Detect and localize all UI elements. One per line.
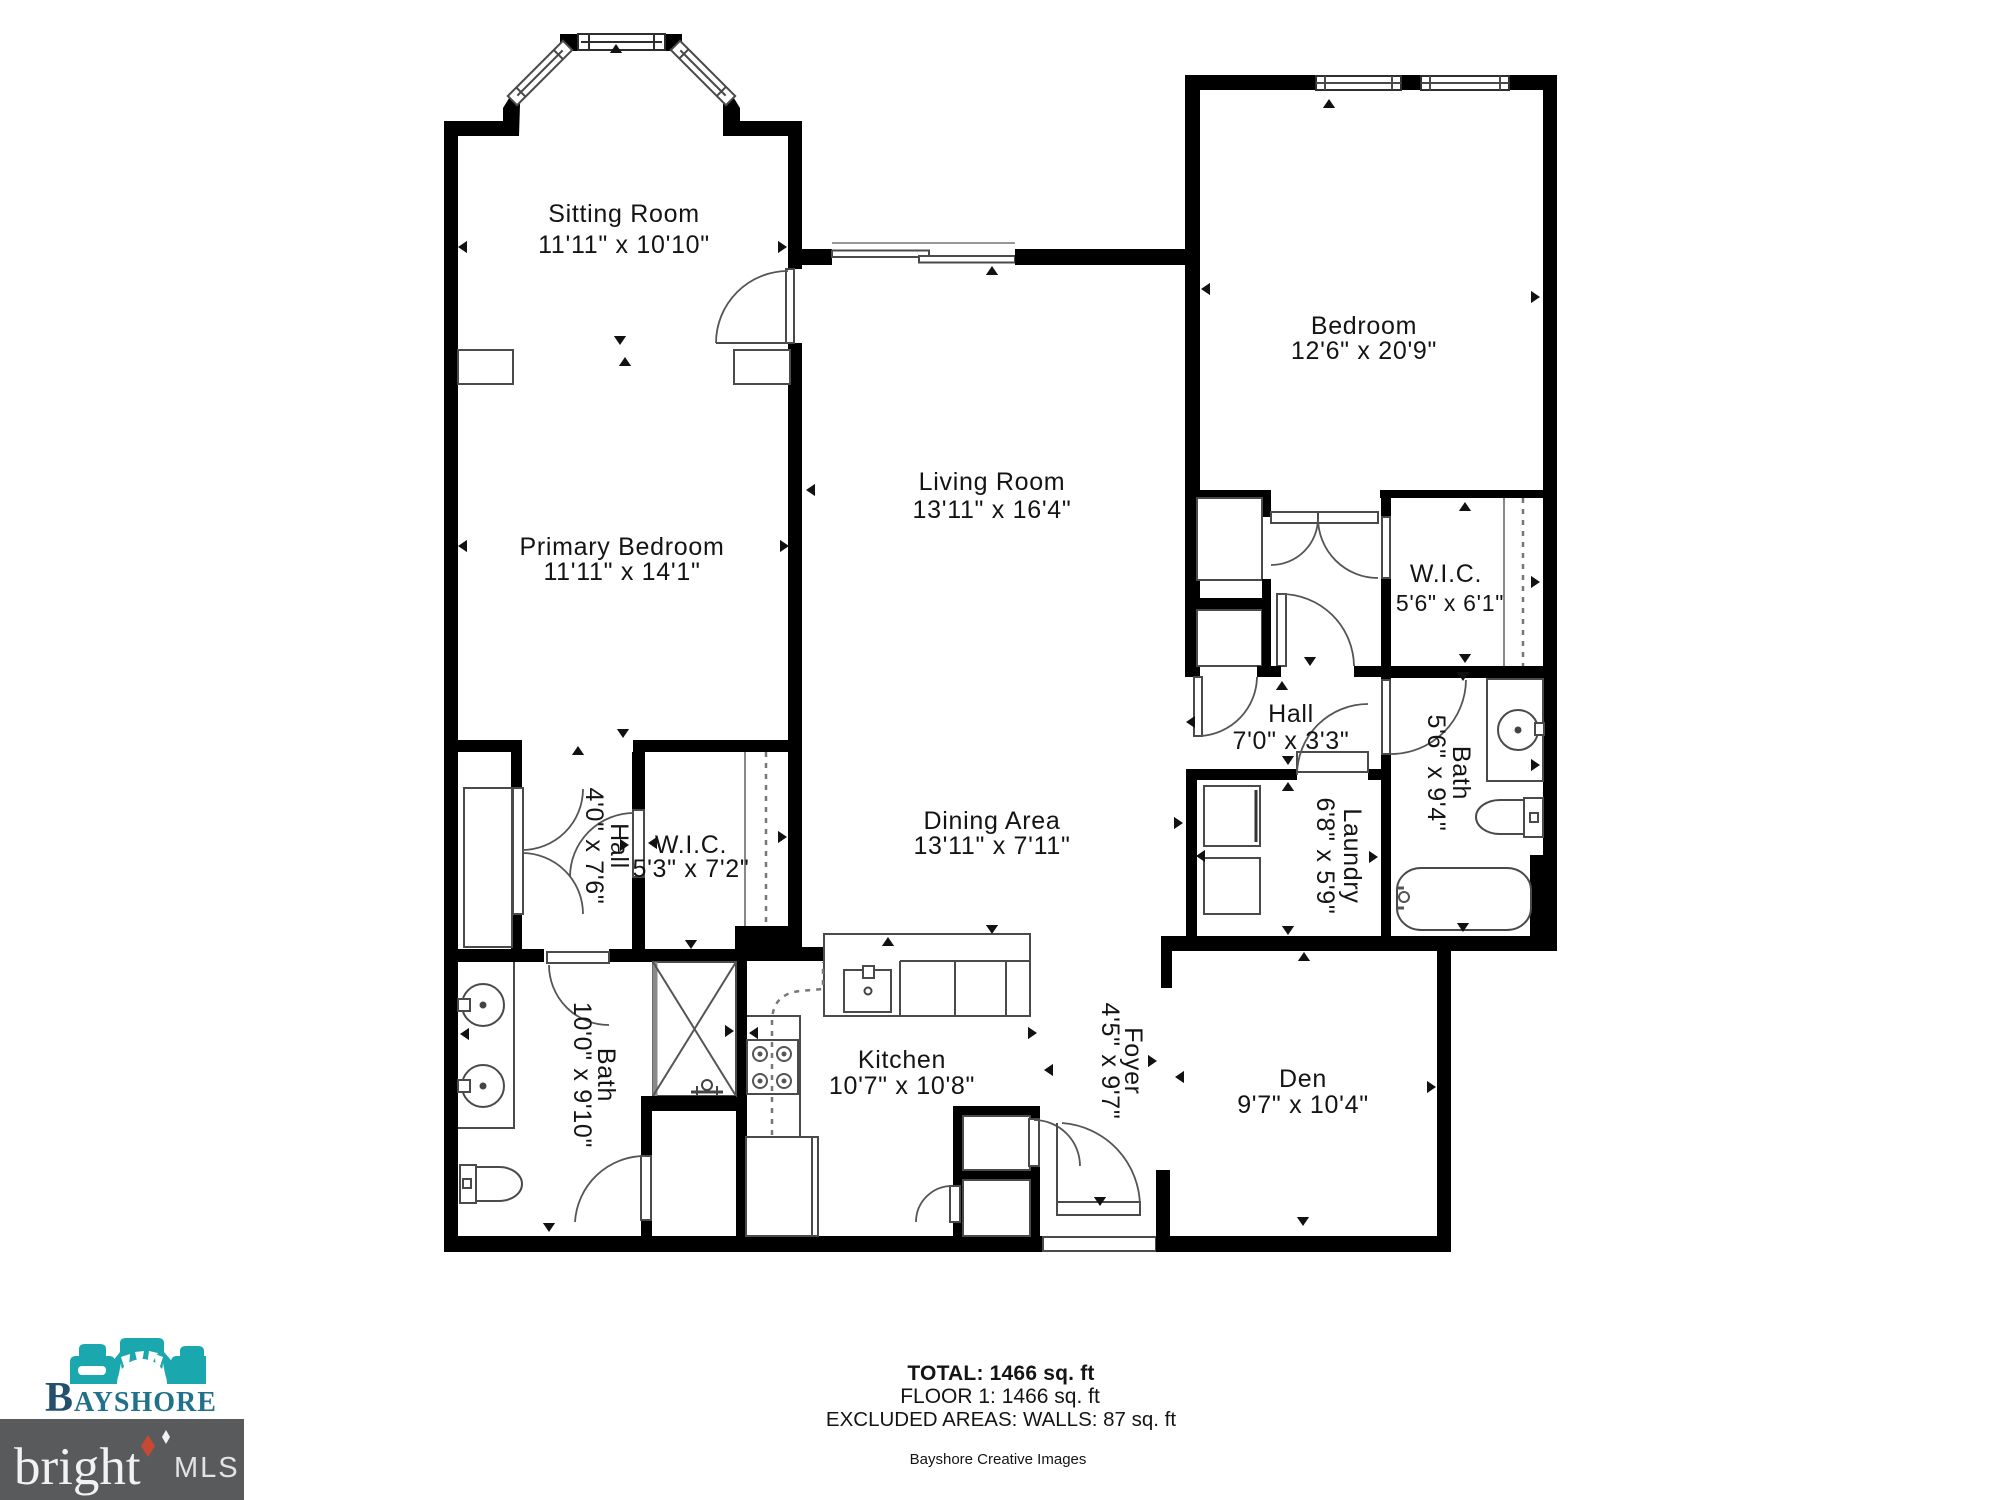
svg-text:7'0" x 3'3": 7'0" x 3'3" bbox=[1232, 727, 1349, 755]
svg-text:9'7" x 10'4": 9'7" x 10'4" bbox=[1237, 1091, 1369, 1119]
svg-text:Kitchen: Kitchen bbox=[858, 1046, 946, 1074]
svg-text:Primary Bedroom: Primary Bedroom bbox=[520, 533, 725, 561]
svg-text:MLS: MLS bbox=[174, 1452, 240, 1484]
svg-text:10'0" x 9'10": 10'0" x 9'10" bbox=[568, 1002, 596, 1148]
svg-text:11'11" x 10'10": 11'11" x 10'10" bbox=[538, 231, 710, 259]
svg-text:5'3" x 7'2": 5'3" x 7'2" bbox=[632, 855, 749, 883]
svg-text:Bayshore Creative Images: Bayshore Creative Images bbox=[910, 1451, 1087, 1468]
svg-text:bright: bright bbox=[14, 1438, 141, 1496]
svg-text:Bedroom: Bedroom bbox=[1311, 312, 1417, 340]
svg-text:FLOOR 1: 1466 sq. ft: FLOOR 1: 1466 sq. ft bbox=[900, 1385, 1100, 1408]
svg-text:6'8" x 5'9": 6'8" x 5'9" bbox=[1311, 797, 1339, 914]
svg-text:Bath: Bath bbox=[1447, 746, 1475, 800]
svg-text:TOTAL: 1466 sq. ft: TOTAL: 1466 sq. ft bbox=[907, 1362, 1094, 1385]
svg-text:12'6" x 20'9": 12'6" x 20'9" bbox=[1291, 337, 1437, 365]
svg-text:Den: Den bbox=[1279, 1065, 1327, 1093]
svg-text:4'0" x 7'6": 4'0" x 7'6" bbox=[580, 787, 608, 904]
svg-text:Laundry: Laundry bbox=[1338, 808, 1366, 903]
svg-text:4'5" x 9'7": 4'5" x 9'7" bbox=[1096, 1002, 1124, 1119]
svg-text:5'6" x 9'4": 5'6" x 9'4" bbox=[1422, 714, 1450, 831]
svg-text:13'11" x 7'11": 13'11" x 7'11" bbox=[913, 832, 1070, 860]
svg-text:11'11" x 14'1": 11'11" x 14'1" bbox=[543, 558, 700, 586]
svg-text:Hall: Hall bbox=[1268, 700, 1314, 728]
svg-text:W.I.C.: W.I.C. bbox=[1410, 560, 1482, 588]
svg-text:EXCLUDED AREAS: WALLS: 87 sq.: EXCLUDED AREAS: WALLS: 87 sq. ft bbox=[826, 1408, 1176, 1431]
svg-text:Dining Area: Dining Area bbox=[924, 807, 1061, 835]
svg-text:5'6" x 6'1": 5'6" x 6'1" bbox=[1396, 590, 1504, 616]
svg-text:10'7" x 10'8": 10'7" x 10'8" bbox=[829, 1072, 975, 1100]
svg-text:Living Room: Living Room bbox=[919, 468, 1066, 496]
svg-text:Hall: Hall bbox=[605, 823, 633, 869]
svg-text:Sitting Room: Sitting Room bbox=[548, 200, 700, 228]
svg-text:13'11" x 16'4": 13'11" x 16'4" bbox=[913, 496, 1072, 524]
